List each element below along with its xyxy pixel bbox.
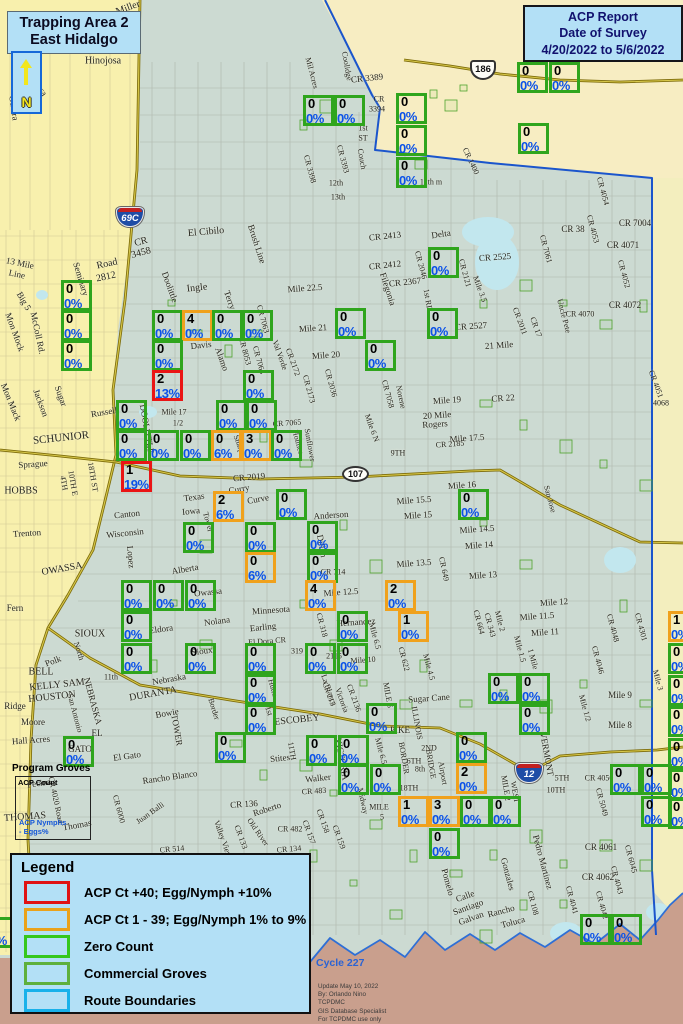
trap-count-box: 00% — [338, 764, 369, 795]
trap-egg-nymph-pct: 0% — [583, 930, 601, 945]
trap-count-box: 06% — [211, 430, 242, 461]
trap-acp-count: 0 — [220, 733, 227, 748]
trap-acp-count: 1 — [403, 612, 410, 627]
trap-acp-count: 0 — [310, 644, 317, 659]
trap-acp-count: 0 — [370, 341, 377, 356]
road-label: Mile 20 — [312, 349, 341, 361]
road-label: Hinojosa — [85, 56, 121, 67]
trap-egg-nymph-pct: 0% — [401, 812, 419, 827]
trap-acp-count: 0 — [121, 401, 128, 416]
trap-count-box: 00% — [456, 732, 487, 763]
trap-count-box: 00% — [668, 798, 683, 829]
trap-count-box: 00% — [215, 732, 246, 763]
trap-egg-nymph-pct: 0% — [671, 754, 683, 769]
road-label: 21 Mile — [485, 339, 514, 351]
trap-egg-nymph-pct: 0% — [399, 141, 417, 156]
legend-item: Commercial Groves — [24, 961, 309, 986]
trap-count-box: 00% — [121, 611, 152, 642]
trap-acp-count: 0 — [248, 371, 255, 386]
trap-egg-nymph-pct: 0% — [368, 356, 386, 371]
trap-count-box: 00% — [517, 62, 548, 93]
trap-count-box: 00% — [519, 704, 550, 735]
trap-count-box: 00% — [246, 400, 277, 431]
road-label: CR 4070 — [566, 310, 595, 319]
trap-acp-count: 0 — [251, 401, 258, 416]
trap-egg-nymph-pct: 0% — [155, 356, 173, 371]
road-label: Ridge — [4, 701, 26, 711]
trap-count-box: 30% — [241, 430, 272, 461]
trap-egg-nymph-pct: 0% — [461, 505, 479, 520]
trap-count-box: 00% — [212, 310, 243, 341]
trap-acp-count: 0 — [646, 765, 653, 780]
legend-item-label: Route Boundaries — [84, 993, 196, 1008]
legend-item: Route Boundaries — [24, 988, 309, 1013]
trap-count-box: 00% — [429, 828, 460, 859]
trap-egg-nymph-pct: 0% — [340, 659, 358, 674]
trap-egg-nymph-pct: 0% — [119, 446, 137, 461]
trap-count-box: 00% — [334, 95, 365, 126]
trap-count-box: 00% — [245, 643, 276, 674]
trap-acp-count: 0 — [615, 765, 622, 780]
trap-acp-count: 0 — [343, 765, 350, 780]
trap-acp-count: 0 — [66, 341, 73, 356]
trap-acp-count: 0 — [157, 341, 164, 356]
road-label: SIOUX — [75, 629, 106, 640]
trap-count-box: 00% — [611, 914, 642, 945]
trap-acp-count: 2 — [157, 371, 164, 386]
trap-count-box: 00% — [668, 706, 683, 737]
trap-acp-count: 0 — [126, 581, 133, 596]
trap-egg-nymph-pct: 0% — [244, 446, 262, 461]
trap-egg-nymph-pct: 0% — [459, 779, 477, 794]
trap-count-box: 10% — [398, 611, 429, 642]
trap-count-box: 00% — [271, 430, 302, 461]
trap-egg-nymph-pct: 13% — [155, 386, 180, 401]
trap-acp-count: 0 — [522, 63, 529, 78]
trap-acp-count: 1 — [403, 797, 410, 812]
trap-acp-count: 0 — [250, 705, 257, 720]
road-label: 9TH — [391, 449, 406, 458]
road-label: 13th — [331, 193, 345, 202]
map-footnote: Update May 10, 2022 By: Orlando Nino TCP… — [318, 983, 386, 1024]
trap-egg-nymph-pct: 0% — [248, 659, 266, 674]
legend-swatch — [24, 989, 70, 1012]
trap-acp-count: 0 — [221, 401, 228, 416]
trap-count-box: 00% — [216, 400, 247, 431]
legend-item-label: Commercial Groves — [84, 966, 207, 981]
trap-acp-count: 2 — [218, 492, 225, 507]
road-label: Mile 11 — [531, 626, 560, 638]
trap-egg-nymph-pct: 0% — [279, 505, 297, 520]
trap-count-box: 00% — [185, 580, 216, 611]
trap-egg-nymph-pct: 0% — [338, 324, 356, 339]
trap-egg-nymph-pct: 0% — [151, 446, 169, 461]
acp-survey-map: MillerHinojosaLaguna SecaGuerra13 MileLi… — [0, 0, 683, 1024]
north-arrow-shaft — [24, 67, 28, 85]
trap-acp-count: 0 — [157, 311, 164, 326]
trap-count-box: 00% — [490, 796, 521, 827]
trap-acp-count: 0 — [250, 523, 257, 538]
trap-egg-nymph-pct: 0% — [388, 596, 406, 611]
trap-egg-nymph-pct: 0% — [248, 538, 266, 553]
trap-egg-nymph-pct: 0% — [310, 537, 328, 552]
road-label: CR — [374, 95, 385, 104]
program-groves-nymph-label: ACP Nymphs - Eggs% — [19, 818, 66, 836]
map-title-line1: Trapping Area 2 — [10, 15, 138, 32]
trap-count-box: 00% — [185, 643, 216, 674]
trap-count-box: 00% — [428, 247, 459, 278]
trap-egg-nymph-pct: 0% — [155, 326, 173, 341]
trap-count-box: 00% — [303, 95, 334, 126]
trap-count-box: 00% — [305, 643, 336, 674]
road-label: Mile 8 — [608, 720, 632, 730]
trap-acp-count: 0 — [523, 124, 530, 139]
trap-acp-count: 0 — [375, 765, 382, 780]
trap-acp-count: 0 — [673, 707, 680, 722]
trap-acp-count: 0 — [190, 644, 197, 659]
trap-egg-nymph-pct: 0% — [188, 659, 206, 674]
trap-egg-nymph-pct: 0% — [249, 416, 267, 431]
report-line1: ACP Report — [525, 9, 681, 25]
road-label: Stites — [270, 752, 291, 764]
legend: Legend ACP Ct +40; Egg/Nymph +10%ACP Ct … — [10, 853, 311, 1014]
road-label: Mile 17 — [161, 408, 186, 417]
trap-egg-nymph-pct: 0% — [671, 691, 683, 706]
trap-acp-count: 4 — [187, 311, 194, 326]
trap-egg-nymph-pct: 0% — [399, 109, 417, 124]
trap-acp-count: 0 — [308, 96, 315, 111]
trap-count-box: 00% — [148, 430, 179, 461]
map-title-box: Trapping Area 2 East Hidalgo — [7, 11, 141, 54]
trap-acp-count: 0 — [673, 676, 680, 691]
trap-egg-nymph-pct: 0% — [613, 780, 631, 795]
trap-acp-count: 0 — [342, 644, 349, 659]
trap-egg-nymph-pct: 0% — [373, 780, 391, 795]
trap-egg-nymph-pct: 0% — [64, 296, 82, 311]
trap-count-box: 00% — [337, 643, 368, 674]
trap-acp-count: 0 — [461, 733, 468, 748]
fm-shield-icon: 107 — [342, 466, 369, 482]
legend-items: ACP Ct +40; Egg/Nymph +10%ACP Ct 1 - 39;… — [12, 880, 309, 1013]
trap-count-box: 00% — [549, 62, 580, 93]
trap-acp-count: 0 — [185, 431, 192, 446]
interstate-shield-icon: 69C — [116, 207, 144, 227]
trap-acp-count: 0 — [216, 431, 223, 446]
road-label: 5TH — [555, 774, 570, 783]
trap-egg-nymph-pct: 0% — [156, 596, 174, 611]
trap-acp-count: 0 — [401, 94, 408, 109]
trap-count-box: 00% — [488, 673, 519, 704]
trap-count-box: 00% — [307, 521, 338, 552]
road-label: Sprague — [18, 458, 48, 470]
trap-acp-count: 0 — [66, 311, 73, 326]
legend-swatch — [24, 908, 70, 931]
trap-egg-nymph-pct: 0% — [614, 930, 632, 945]
trap-egg-nymph-pct: 0% — [218, 748, 236, 763]
trap-egg-nymph-pct: 0% — [671, 722, 683, 737]
trap-acp-count: 0 — [340, 309, 347, 324]
trap-count-box: 40% — [305, 580, 336, 611]
trap-egg-nymph-pct: 0% — [183, 446, 201, 461]
road-label: MILE — [369, 803, 389, 812]
trap-acp-count: 4 — [310, 581, 317, 596]
trap-egg-nymph-pct: 6% — [216, 507, 234, 522]
trap-acp-count: 0 — [493, 674, 500, 689]
road-label: CR 4062 — [582, 872, 614, 882]
legend-title: Legend — [12, 855, 309, 878]
trap-egg-nymph-pct: 0% — [522, 689, 540, 704]
trap-count-box: 10% — [398, 796, 429, 827]
trap-egg-nymph-pct: 0% — [308, 659, 326, 674]
trap-count-box: 00% — [152, 340, 183, 371]
trap-egg-nymph-pct: 0% — [219, 416, 237, 431]
trap-acp-count: 0 — [158, 581, 165, 596]
trap-egg-nymph-pct: 19% — [124, 477, 149, 492]
trap-count-box: 30% — [429, 796, 460, 827]
trap-egg-nymph-pct: 0% — [0, 933, 7, 948]
trap-acp-count: 0 — [646, 797, 653, 812]
trap-count-box: 00% — [121, 580, 152, 611]
trap-acp-count: 0 — [673, 644, 680, 659]
trap-egg-nymph-pct: 0% — [552, 78, 570, 93]
trap-acp-count: 0 — [401, 126, 408, 141]
trap-acp-count: 2 — [390, 581, 397, 596]
trap-acp-count: 0 — [312, 553, 319, 568]
trap-egg-nymph-pct: 0% — [671, 659, 683, 674]
trap-egg-nymph-pct: 0% — [399, 173, 417, 188]
trap-count-box: 00% — [519, 673, 550, 704]
trap-acp-count: 0 — [281, 490, 288, 505]
trap-egg-nymph-pct: 6% — [248, 568, 266, 583]
trap-egg-nymph-pct: 0% — [186, 538, 204, 553]
trap-acp-count: 3 — [246, 431, 253, 446]
trap-acp-count: 0 — [432, 309, 439, 324]
trap-egg-nymph-pct: 0% — [309, 751, 327, 766]
road-label: CR 22 — [491, 392, 515, 404]
road-label: BELL — [29, 667, 54, 678]
legend-swatch — [24, 962, 70, 985]
trap-count-box: 00% — [183, 522, 214, 553]
trap-count-box: 00% — [306, 735, 337, 766]
trap-egg-nymph-pct: 0% — [274, 446, 292, 461]
road-label: CR 482 — [278, 825, 303, 834]
trap-count-box: 26% — [213, 491, 244, 522]
trap-count-box: 00% — [276, 489, 307, 520]
trap-egg-nymph-pct: 0% — [308, 596, 326, 611]
trap-egg-nymph-pct: 0% — [119, 416, 137, 431]
trap-count-box: 00% — [243, 370, 274, 401]
trap-count-box: 00% — [365, 340, 396, 371]
trap-acp-count: 0 — [433, 248, 440, 263]
trap-acp-count: 0 — [247, 311, 254, 326]
road-label: Fern — [7, 603, 24, 613]
legend-item: ACP Ct 1 - 39; Egg/Nymph 1% to 9% — [24, 907, 309, 932]
trap-egg-nymph-pct: 0% — [185, 326, 203, 341]
trap-egg-nymph-pct: 0% — [246, 386, 264, 401]
road-label: 8th — [415, 765, 425, 774]
trap-count-box: 00% — [116, 400, 147, 431]
trap-egg-nymph-pct: 0% — [215, 326, 233, 341]
interstate-shield-icon: 12 — [515, 763, 543, 783]
trap-egg-nymph-pct: 0% — [245, 326, 263, 341]
trap-acp-count: 0 — [126, 644, 133, 659]
trap-acp-count: 0 — [217, 311, 224, 326]
road-label: CR 7004 — [619, 218, 651, 228]
program-groves-count-label: ACP Count — [18, 778, 57, 787]
legend-item-label: ACP Ct +40; Egg/Nymph +10% — [84, 885, 272, 900]
trap-count-box: 00% — [335, 308, 366, 339]
trap-acp-count: 0 — [121, 431, 128, 446]
trap-egg-nymph-pct: 0% — [430, 324, 448, 339]
trap-count-box: 00% — [458, 489, 489, 520]
trap-count-box: 00% — [116, 430, 147, 461]
road-label: CR 4072 — [609, 300, 641, 310]
trap-acp-count: 0 — [153, 431, 160, 446]
trap-count-box: 00% — [460, 796, 491, 827]
road-label: Moore — [21, 717, 45, 727]
trap-acp-count: 0 — [554, 63, 561, 78]
trap-count-box: 00% — [245, 704, 276, 735]
trap-egg-nymph-pct: 0% — [463, 812, 481, 827]
trap-egg-nymph-pct: 0% — [644, 780, 662, 795]
report-title-box: ACP Report Date of Survey 4/20/2022 to 5… — [523, 5, 683, 62]
trap-count-box: 40% — [182, 310, 213, 341]
trap-count-box: 00% — [245, 674, 276, 705]
trap-egg-nymph-pct: 0% — [124, 627, 142, 642]
trap-acp-count: 0 — [276, 431, 283, 446]
trap-acp-count: 0 — [371, 704, 378, 719]
road-label: 319 — [291, 647, 303, 656]
legend-item: ACP Ct +40; Egg/Nymph +10% — [24, 880, 309, 905]
road-label: CR 4071 — [607, 240, 639, 250]
road-label: 12th — [329, 179, 343, 188]
trap-acp-count: 0 — [188, 523, 195, 538]
trap-acp-count: 0 — [524, 705, 531, 720]
trap-count-box: 00% — [518, 123, 549, 154]
road-label: 10TH — [547, 786, 566, 795]
trap-count-box: 00% — [366, 703, 397, 734]
road-label: Trenton — [13, 527, 42, 539]
road-label: Mile 13 — [469, 569, 498, 581]
trap-acp-count: 0 — [126, 612, 133, 627]
trap-egg-nymph-pct: 0% — [520, 78, 538, 93]
trap-acp-count: 0 — [311, 736, 318, 751]
road-label: ST — [358, 134, 367, 143]
road-label: CR 4061 — [585, 842, 617, 852]
trap-egg-nymph-pct: 0% — [64, 326, 82, 341]
trap-egg-nymph-pct: 0% — [491, 689, 509, 704]
trap-egg-nymph-pct: 0% — [341, 780, 359, 795]
road-label: Mile 9 — [608, 690, 632, 700]
trap-egg-nymph-pct: 0% — [340, 627, 358, 642]
trap-acp-count: 0 — [190, 581, 197, 596]
trap-count-box: 00% — [396, 93, 427, 124]
trap-count-box: 00% — [180, 430, 211, 461]
trap-acp-count: 0 — [434, 829, 441, 844]
cycle-label: Cycle 227 — [316, 957, 364, 969]
trap-acp-count: 1 — [673, 612, 680, 627]
road-label: 3394 — [369, 105, 385, 114]
trap-egg-nymph-pct: 0% — [431, 263, 449, 278]
trap-egg-nymph-pct: 0% — [671, 627, 683, 642]
road-label: CR 38 — [561, 224, 584, 234]
trap-count-box: 20% — [456, 763, 487, 794]
road-label: 4068 — [653, 399, 669, 408]
road-label: 11th — [104, 673, 118, 682]
trap-acp-count: 0 — [524, 674, 531, 689]
trap-acp-count: 0 — [250, 553, 257, 568]
trap-count-box: 00% — [370, 764, 401, 795]
trap-count-box: 00% — [242, 310, 273, 341]
road-label: HOBBS — [4, 486, 37, 497]
trap-count-box: 00% — [396, 157, 427, 188]
trap-acp-count: 0 — [616, 915, 623, 930]
us-shield-icon: 186 — [470, 60, 496, 80]
road-label: 18TH — [400, 784, 419, 793]
trap-egg-nymph-pct: 0% — [124, 596, 142, 611]
trap-acp-count: 0 — [250, 644, 257, 659]
trap-acp-count: 0 — [673, 739, 680, 754]
road-label: Ingle — [186, 281, 208, 294]
trap-egg-nymph-pct: 0% — [337, 111, 355, 126]
trap-acp-count: 0 — [465, 797, 472, 812]
legend-item-label: Zero Count — [84, 939, 153, 954]
trap-count-box: 00% — [396, 125, 427, 156]
north-label: N — [13, 94, 40, 110]
trap-count-box: 06% — [245, 552, 276, 583]
trap-acp-count: 1 — [126, 462, 133, 477]
trap-count-box: 00% — [121, 643, 152, 674]
program-groves-title: Program Groves — [12, 763, 90, 774]
program-groves-box: ACP Count ACP Nymphs - Eggs% — [15, 776, 91, 840]
trap-count-box: 00% — [61, 310, 92, 341]
trap-egg-nymph-pct: 0% — [459, 748, 477, 763]
trap-count-box: 00% — [61, 340, 92, 371]
road-label: 1/2 — [173, 419, 183, 428]
trap-acp-count: 0 — [342, 612, 349, 627]
trap-count-box: 00% — [338, 735, 369, 766]
road-label: Mile 21 — [299, 322, 328, 334]
trap-acp-count: 0 — [495, 797, 502, 812]
trap-count-box: 20% — [385, 580, 416, 611]
report-line3: 4/20/2022 to 5/6/2022 — [525, 42, 681, 58]
trap-egg-nymph-pct: 0% — [369, 719, 387, 734]
trap-acp-count: 0 — [673, 770, 680, 785]
trap-count-box: 119% — [121, 461, 152, 492]
map-title-line2: East Hidalgo — [10, 32, 138, 49]
trap-count-box: 00% — [668, 643, 683, 674]
report-line2: Date of Survey — [525, 25, 681, 41]
trap-count-box: 00% — [610, 764, 641, 795]
trap-egg-nymph-pct: 0% — [432, 844, 450, 859]
trap-egg-nymph-pct: 0% — [521, 139, 539, 154]
trap-egg-nymph-pct: 0% — [401, 627, 419, 642]
legend-item-label: ACP Ct 1 - 39; Egg/Nymph 1% to 9% — [84, 912, 306, 927]
trap-acp-count: 2 — [461, 764, 468, 779]
trap-acp-count: 0 — [312, 522, 319, 537]
trap-count-box: 00% — [61, 280, 92, 311]
legend-item: Zero Count — [24, 934, 309, 959]
trap-count-box: 00% — [337, 611, 368, 642]
trap-egg-nymph-pct: 0% — [522, 720, 540, 735]
trap-count-box: 00% — [580, 914, 611, 945]
trap-egg-nymph-pct: 0% — [124, 659, 142, 674]
trap-count-box: 213% — [152, 370, 183, 401]
trap-acp-count: 0 — [463, 490, 470, 505]
trap-egg-nymph-pct: 0% — [671, 814, 683, 829]
trap-egg-nymph-pct: 0% — [432, 812, 450, 827]
road-label: Mile 14 — [465, 539, 494, 551]
